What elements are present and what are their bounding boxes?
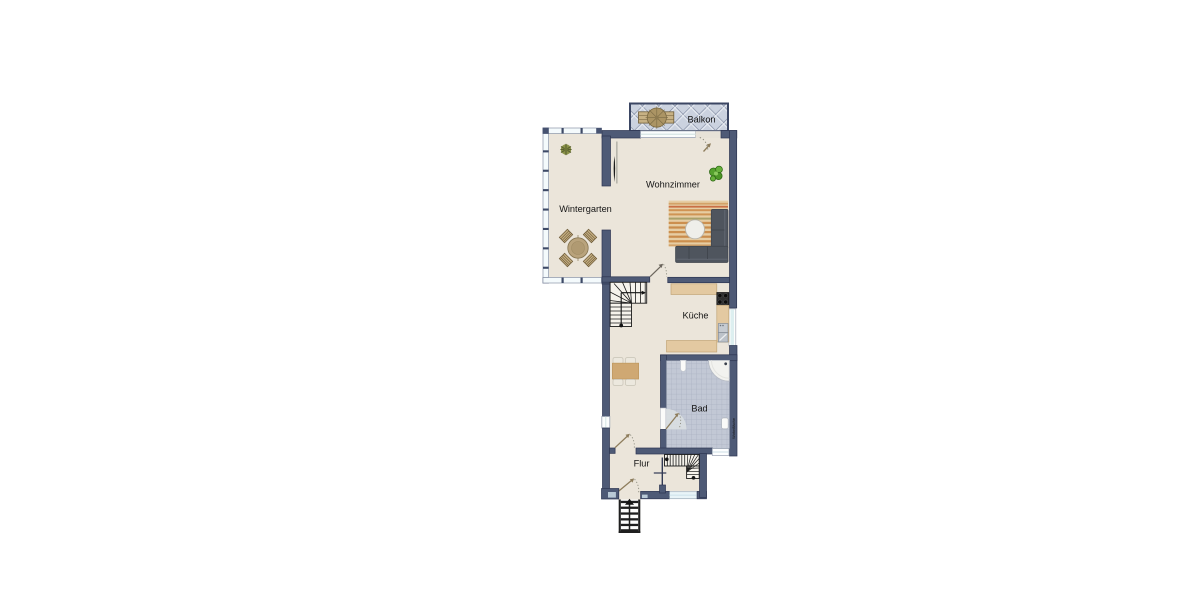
svg-text:Bad: Bad [691, 403, 707, 413]
svg-text:Wohnzimmer: Wohnzimmer [646, 180, 700, 190]
svg-text:Flur: Flur [634, 459, 650, 469]
svg-text:Wintergarten: Wintergarten [559, 204, 612, 214]
svg-text:Küche: Küche [682, 310, 708, 320]
svg-text:Balkon: Balkon [687, 114, 715, 124]
svg-text:Wohnfläche: Wohnfläche [731, 417, 736, 439]
